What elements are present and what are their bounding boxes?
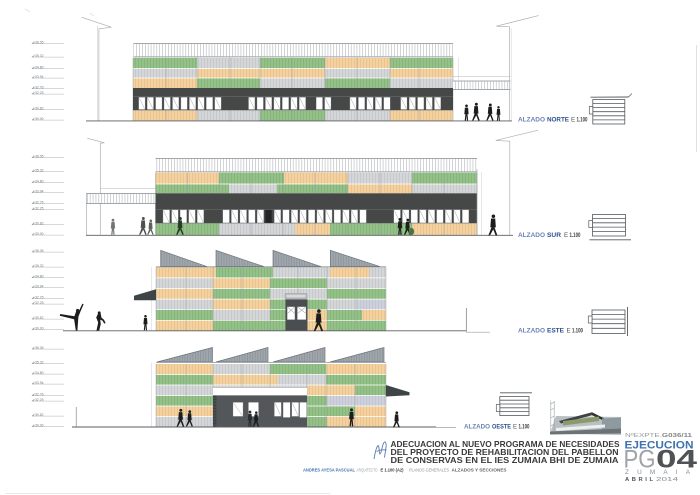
svg-text:ARQUITECTO: ARQUITECTO xyxy=(357,467,379,472)
svg-text:+30.82: +30.82 xyxy=(33,316,44,320)
svg-text:ANDRES AYESA PASCUAL: ANDRES AYESA PASCUAL xyxy=(303,467,355,472)
svg-text:1.100: 1.100 xyxy=(519,425,530,431)
svg-text:ESTE: ESTE xyxy=(547,328,564,335)
svg-text:OESTE: OESTE xyxy=(492,425,511,431)
svg-text:+32.76: +32.76 xyxy=(33,295,44,299)
svg-text:+32.25: +32.25 xyxy=(33,398,44,402)
svg-text:+32.76: +32.76 xyxy=(33,85,44,89)
svg-text:+30.00: +30.00 xyxy=(33,423,44,427)
svg-text:+35.32: +35.32 xyxy=(33,54,44,58)
svg-text:2014: 2014 xyxy=(656,477,679,483)
svg-text:+30.82: +30.82 xyxy=(33,106,44,110)
svg-text:DE CONSERVAS EN EL IES ZUMAIA: DE CONSERVAS EN EL IES ZUMAIA BHI DE ZUM… xyxy=(391,456,619,465)
svg-text:+36.05: +36.05 xyxy=(33,154,44,158)
svg-text:+36.05: +36.05 xyxy=(33,40,44,44)
svg-text:1.100: 1.100 xyxy=(570,232,581,239)
svg-text:+32.76: +32.76 xyxy=(33,392,44,396)
svg-text:E: E xyxy=(564,232,568,239)
svg-text:E: E xyxy=(513,425,517,431)
svg-text:+35.32: +35.32 xyxy=(33,168,44,172)
svg-text:+35.32: +35.32 xyxy=(33,264,44,268)
svg-text:+33.94: +33.94 xyxy=(33,381,44,385)
svg-text:+36.05: +36.05 xyxy=(33,249,44,253)
svg-text:+34.80: +34.80 xyxy=(33,371,44,375)
svg-text:+32.76: +32.76 xyxy=(33,200,44,204)
svg-text:+30.00: +30.00 xyxy=(33,117,44,121)
svg-text:E: E xyxy=(571,117,575,124)
svg-text:ALZADOS Y SECCIONES: ALZADOS Y SECCIONES xyxy=(452,467,507,472)
svg-text:+30.82: +30.82 xyxy=(33,413,44,417)
svg-text:+32.25: +32.25 xyxy=(33,301,44,305)
svg-text:+30.00: +30.00 xyxy=(33,326,44,330)
svg-text:ALZADO: ALZADO xyxy=(518,328,545,335)
svg-text:NºEXPTE.G036/11: NºEXPTE.G036/11 xyxy=(625,432,692,439)
svg-text:+30.00: +30.00 xyxy=(33,232,44,236)
svg-text:E 1.100 (A2): E 1.100 (A2) xyxy=(381,467,404,473)
svg-text:+33.94: +33.94 xyxy=(33,189,44,193)
svg-text:+34.80: +34.80 xyxy=(33,179,44,183)
svg-text:+33.94: +33.94 xyxy=(33,75,44,79)
svg-text:+35.32: +35.32 xyxy=(33,360,44,364)
svg-text:+30.82: +30.82 xyxy=(33,221,44,225)
svg-text:E: E xyxy=(567,328,571,335)
svg-text:PLANOS GENERALES: PLANOS GENERALES xyxy=(409,467,449,472)
svg-text:+34.80: +34.80 xyxy=(33,65,44,69)
svg-text:+32.25: +32.25 xyxy=(33,91,44,95)
svg-text:+33.94: +33.94 xyxy=(33,284,44,288)
svg-text:1.100: 1.100 xyxy=(572,328,583,335)
svg-text:+34.80: +34.80 xyxy=(33,274,44,278)
svg-text:+36.05: +36.05 xyxy=(33,346,44,350)
svg-text:ALZADO: ALZADO xyxy=(518,232,545,239)
svg-text:NORTE: NORTE xyxy=(547,117,569,124)
svg-text:1.100: 1.100 xyxy=(577,117,588,124)
svg-text:+32.25: +32.25 xyxy=(33,206,44,210)
svg-text:ALZADO: ALZADO xyxy=(518,117,545,124)
svg-text:SUR: SUR xyxy=(547,232,562,239)
svg-text:ALZADO: ALZADO xyxy=(464,425,490,431)
